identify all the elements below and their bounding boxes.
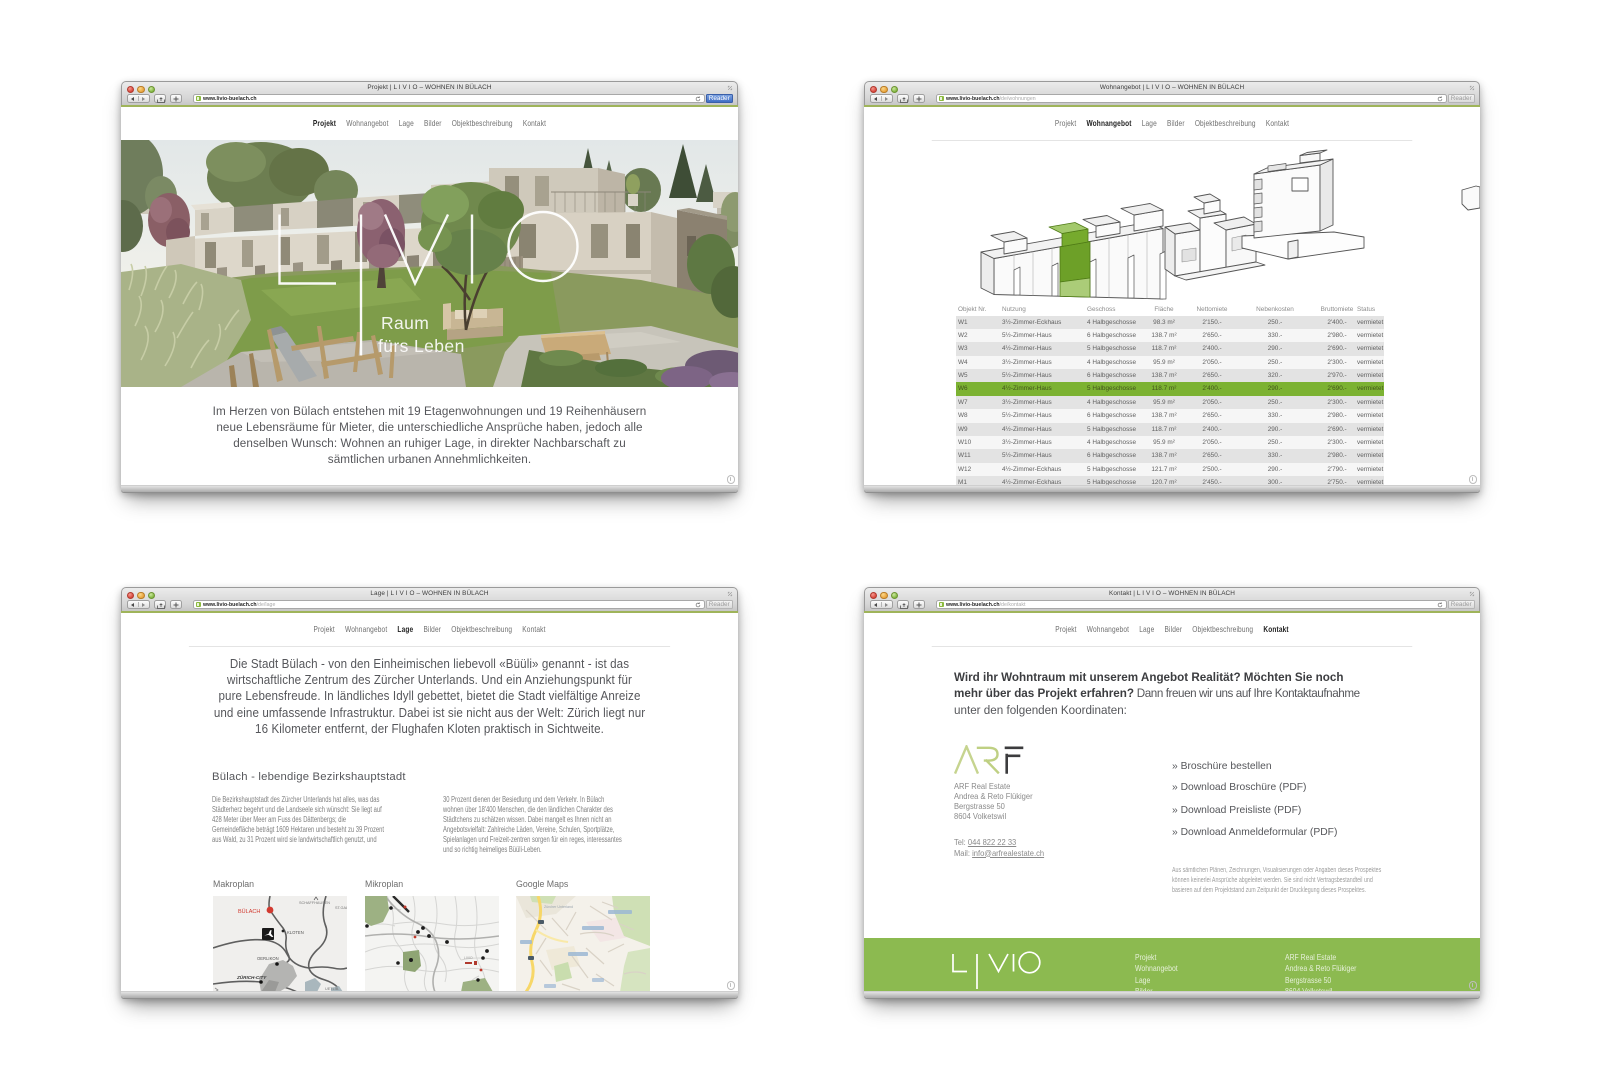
- svg-text:BÜLACH: BÜLACH: [238, 908, 260, 915]
- svg-text:ZÜRICH-CITY: ZÜRICH-CITY: [236, 974, 267, 980]
- svg-text:KLOTEN: KLOTEN: [287, 930, 304, 935]
- svg-text:SCHAFFHAUSEN: SCHAFFHAUSEN: [299, 901, 330, 905]
- svg-text:LIVIO: LIVIO: [464, 956, 473, 960]
- svg-text:ST.GALL: ST.GALL: [335, 906, 347, 910]
- svg-text:UETLIB.: UETLIB.: [325, 987, 339, 991]
- svg-text:Raum: Raum: [381, 313, 429, 333]
- svg-text:OERLIKON: OERLIKON: [257, 956, 279, 961]
- svg-text:fürs Leben: fürs Leben: [378, 336, 465, 356]
- svg-text:Zürcher Unterland: Zürcher Unterland: [544, 905, 573, 909]
